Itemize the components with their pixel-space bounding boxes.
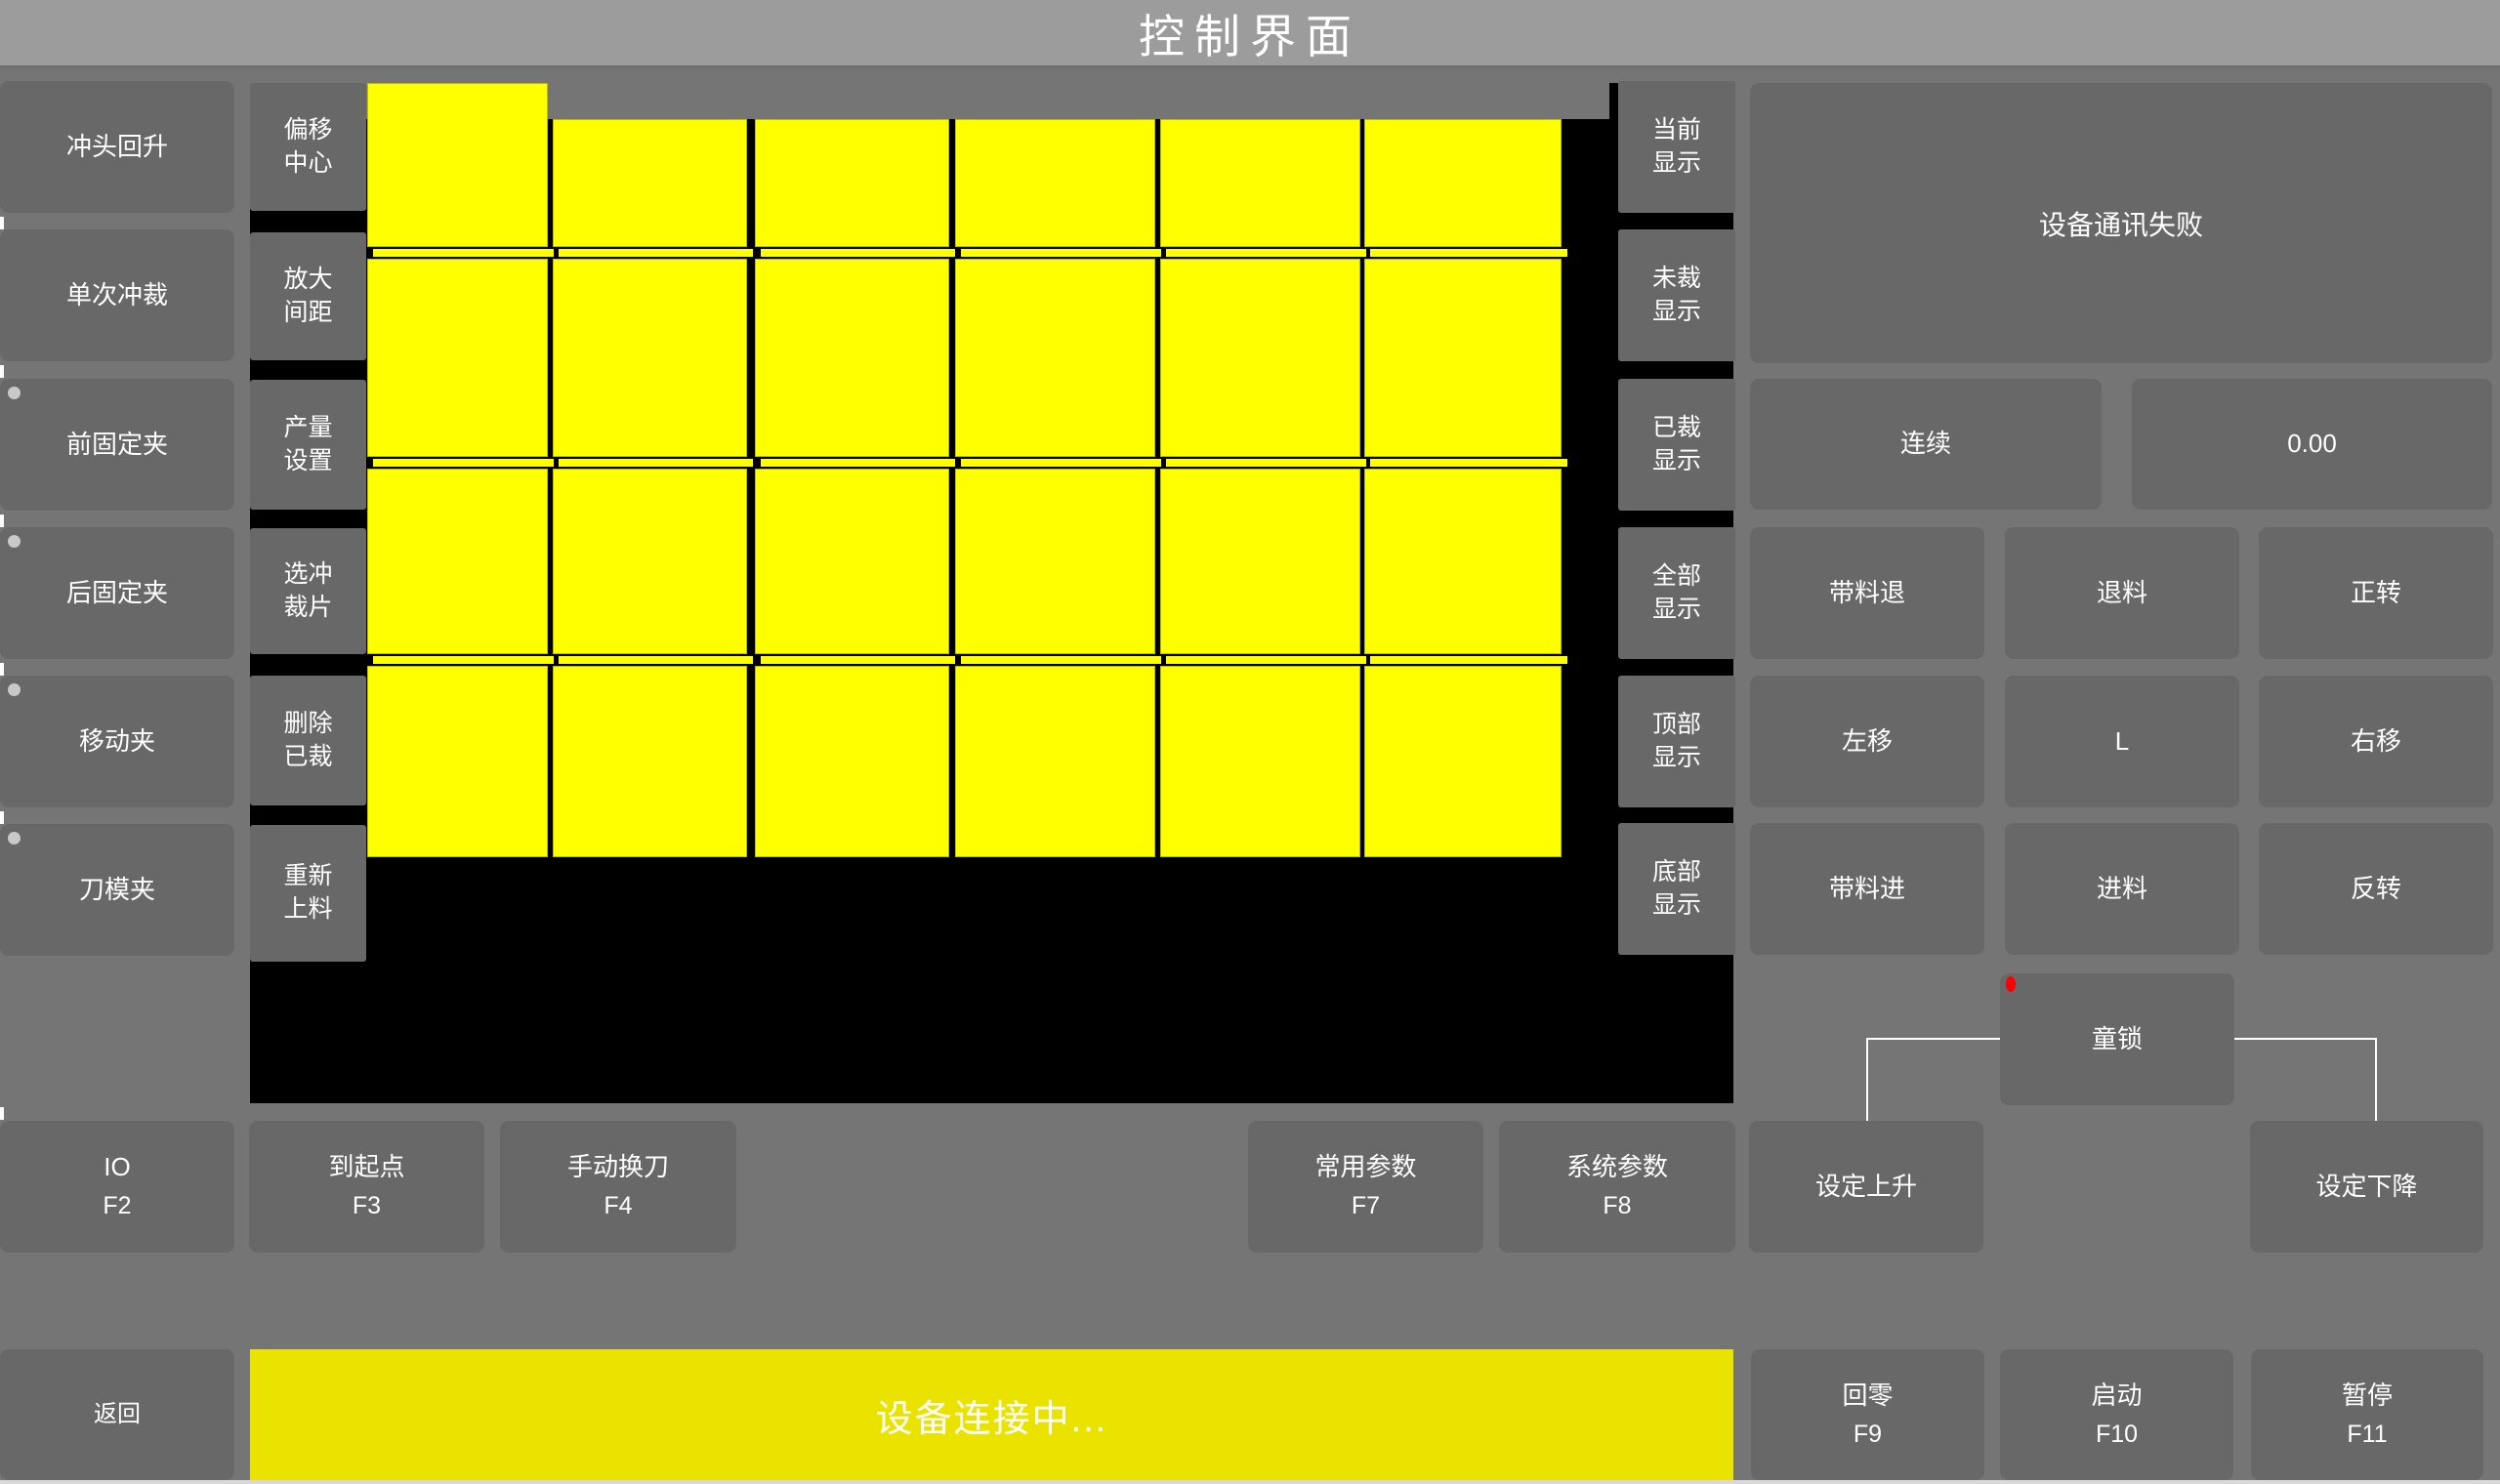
- nest-divider-strip: [559, 249, 753, 257]
- page-title: 控制界面: [1139, 0, 1361, 66]
- button-label: 全部 显示: [1652, 560, 1701, 627]
- button-io-f2[interactable]: IO F2: [0, 1121, 234, 1253]
- button-l[interactable]: L: [2005, 676, 2239, 807]
- button-label: 设定上升: [1815, 1170, 1917, 1204]
- nest-piece[interactable]: [1160, 259, 1360, 457]
- button-unload-material[interactable]: 退料: [2005, 527, 2239, 659]
- nest-piece[interactable]: [955, 469, 1155, 654]
- button-current-display[interactable]: 当前 显示: [1618, 81, 1735, 213]
- button-rear-clamp[interactable]: 后固定夹: [0, 527, 234, 659]
- button-label: 暂停: [2342, 1379, 2393, 1413]
- button-label: 偏移 中心: [283, 114, 332, 181]
- nest-piece[interactable]: [367, 469, 548, 654]
- button-punch-raise[interactable]: 冲头回升: [0, 81, 234, 213]
- edge-tick: [0, 663, 4, 676]
- button-label: 进料: [2097, 872, 2147, 906]
- nest-divider-strip: [373, 656, 554, 664]
- edge-tick: [0, 515, 4, 527]
- indicator-dot: [8, 832, 21, 845]
- alert-message: 设备通讯失败: [2039, 204, 2203, 243]
- button-label: 系统参数: [1566, 1150, 1668, 1184]
- wire-right-h: [2234, 1038, 2377, 1040]
- indicator-dot: [8, 535, 21, 548]
- wire-left-v: [1866, 1038, 1868, 1121]
- fkey-label: F7: [1352, 1190, 1380, 1223]
- button-label: 设定下降: [2315, 1170, 2417, 1204]
- button-die-clamp[interactable]: 刀模夹: [0, 824, 234, 956]
- nest-piece[interactable]: [553, 119, 747, 247]
- button-top-display[interactable]: 顶部 显示: [1618, 676, 1735, 807]
- nest-divider-strip: [761, 249, 955, 257]
- child-lock-active-dot: [2006, 976, 2016, 992]
- control-screen: 控制界面 冲头回升 单次冲裁 前固定夹 后固定夹 移动夹 刀模夹 偏移 中心 放…: [0, 0, 2500, 1484]
- fkey-label: F11: [2347, 1419, 2387, 1452]
- button-move-left[interactable]: 左移: [1750, 676, 1984, 807]
- button-system-params-f8[interactable]: 系统参数 F8: [1499, 1121, 1735, 1253]
- nest-divider-strip: [1370, 249, 1567, 257]
- nest-divider-strip: [1166, 459, 1366, 467]
- nest-piece[interactable]: [1160, 469, 1360, 654]
- button-label: L: [2115, 724, 2129, 759]
- button-label: 顶部 显示: [1652, 709, 1701, 775]
- button-reverse-rotate[interactable]: 反转: [2259, 823, 2493, 955]
- nest-piece[interactable]: [1364, 666, 1562, 857]
- nest-piece[interactable]: [553, 666, 747, 857]
- nest-piece[interactable]: [1160, 666, 1360, 857]
- button-set-rise[interactable]: 设定上升: [1749, 1121, 1983, 1253]
- button-uncut-display[interactable]: 未裁 显示: [1618, 229, 1735, 361]
- button-label: 冲头回升: [66, 130, 168, 164]
- button-label: 连续: [1900, 427, 1951, 461]
- nest-divider-strip: [961, 459, 1161, 467]
- edge-tick: [0, 365, 4, 378]
- nest-piece[interactable]: [955, 119, 1155, 247]
- button-enlarge-gap[interactable]: 放大 间距: [250, 232, 366, 360]
- button-label: 启动: [2091, 1379, 2142, 1413]
- nest-divider-strip: [1370, 656, 1567, 664]
- nest-divider-strip: [761, 656, 955, 664]
- button-yield-settings[interactable]: 产量 设置: [250, 380, 366, 510]
- indicator-dot: [8, 683, 21, 696]
- button-pause-f11[interactable]: 暂停 F11: [2251, 1349, 2483, 1480]
- nest-divider-strip: [1166, 656, 1366, 664]
- button-label: 反转: [2351, 872, 2401, 906]
- button-label: 重新 上料: [283, 860, 332, 927]
- edge-tick: [0, 217, 4, 229]
- button-set-lower[interactable]: 设定下降: [2250, 1121, 2483, 1253]
- nest-piece[interactable]: [367, 259, 548, 457]
- button-label: 未裁 显示: [1652, 263, 1701, 329]
- button-label: 删除 已裁: [283, 708, 332, 774]
- nest-piece[interactable]: [755, 119, 949, 247]
- button-strip-retract[interactable]: 带料退: [1750, 527, 1984, 659]
- nest-piece[interactable]: [1364, 259, 1562, 457]
- button-to-origin-f3[interactable]: 到起点 F3: [249, 1121, 484, 1253]
- button-label: 回零: [1842, 1379, 1893, 1413]
- button-back[interactable]: 返回: [0, 1349, 234, 1480]
- button-label: 带料进: [1829, 872, 1905, 906]
- wire-left-h: [1866, 1038, 2000, 1040]
- button-all-display[interactable]: 全部 显示: [1618, 527, 1735, 659]
- edge-tick: [0, 811, 4, 824]
- button-label: 产量 设置: [283, 412, 332, 478]
- button-reload-material[interactable]: 重新 上料: [250, 825, 366, 962]
- nest-divider-strip: [961, 656, 1161, 664]
- bottom-edge-strip: [0, 1480, 2500, 1484]
- nest-piece[interactable]: [955, 666, 1155, 857]
- value-display-box: 0.00: [2132, 379, 2492, 510]
- nest-piece[interactable]: [553, 469, 747, 654]
- button-label: 刀模夹: [79, 873, 155, 907]
- indicator-dot: [8, 387, 21, 399]
- button-move-right[interactable]: 右移: [2259, 676, 2493, 807]
- button-label: 放大 间距: [283, 264, 332, 330]
- nest-piece[interactable]: [367, 666, 548, 857]
- fkey-label: F8: [1603, 1190, 1631, 1223]
- button-label: IO: [104, 1150, 130, 1184]
- nest-divider-strip: [373, 459, 554, 467]
- fkey-label: F3: [353, 1190, 381, 1223]
- fkey-label: F4: [604, 1190, 632, 1223]
- button-home-f9[interactable]: 回零 F9: [1751, 1349, 1984, 1480]
- button-label: 移动夹: [79, 724, 155, 759]
- button-manual-tool-change-f4[interactable]: 手动换刀 F4: [500, 1121, 736, 1253]
- fkey-label: F9: [1854, 1419, 1882, 1452]
- button-label: 正转: [2351, 576, 2401, 610]
- button-moving-clamp[interactable]: 移动夹: [0, 676, 234, 807]
- button-label: 到起点: [328, 1150, 404, 1184]
- edge-tick: [0, 1107, 4, 1120]
- button-label: 单次冲裁: [66, 278, 168, 312]
- button-select-piece[interactable]: 选冲 裁片: [250, 528, 366, 654]
- button-bottom-display[interactable]: 底部 显示: [1618, 823, 1735, 955]
- button-label: 前固定夹: [66, 428, 168, 462]
- canvas-top-bar: [1609, 83, 1618, 119]
- nest-piece[interactable]: [367, 83, 548, 247]
- nest-piece[interactable]: [755, 666, 949, 857]
- button-common-params-f7[interactable]: 常用参数 F7: [1248, 1121, 1483, 1253]
- nest-divider-strip: [961, 249, 1161, 257]
- fkey-label: F10: [2096, 1419, 2138, 1452]
- nest-piece[interactable]: [755, 259, 949, 457]
- nest-piece[interactable]: [755, 469, 949, 654]
- nest-divider-strip: [373, 249, 554, 257]
- button-label: 后固定夹: [66, 576, 168, 610]
- nest-piece[interactable]: [1160, 119, 1360, 247]
- button-single-punch[interactable]: 单次冲裁: [0, 229, 234, 361]
- button-label: 童锁: [2092, 1022, 2143, 1056]
- button-strip-feed[interactable]: 带料进: [1750, 823, 1984, 955]
- button-feed-material[interactable]: 进料: [2005, 823, 2239, 955]
- button-label: 选冲 裁片: [283, 558, 332, 625]
- nest-divider-strip: [559, 656, 753, 664]
- fkey-label: F2: [103, 1190, 131, 1223]
- nest-piece[interactable]: [1364, 469, 1562, 654]
- button-label: 左移: [1842, 724, 1893, 759]
- button-label: 退料: [2097, 576, 2147, 610]
- button-label: 返回: [94, 1399, 141, 1430]
- wire-right-v: [2375, 1038, 2377, 1121]
- button-front-clamp[interactable]: 前固定夹: [0, 379, 234, 511]
- nest-divider-strip: [1166, 249, 1366, 257]
- title-bar: 控制界面: [0, 0, 2500, 68]
- button-label: 常用参数: [1314, 1150, 1416, 1184]
- alert-panel: 设备通讯失败: [1750, 83, 2492, 363]
- status-text: 设备连接中...: [876, 1388, 1108, 1442]
- value-readout: 0.00: [2287, 427, 2337, 461]
- button-continuous-mode[interactable]: 连续: [1750, 379, 2102, 510]
- button-delete-cut[interactable]: 删除 已裁: [250, 676, 366, 805]
- nest-piece[interactable]: [1364, 119, 1562, 247]
- button-label: 带料退: [1829, 576, 1905, 610]
- nest-piece[interactable]: [553, 259, 747, 457]
- button-offset-center[interactable]: 偏移 中心: [250, 83, 366, 211]
- button-start-f10[interactable]: 启动 F10: [2000, 1349, 2233, 1480]
- nest-divider-strip: [761, 459, 955, 467]
- button-forward-rotate[interactable]: 正转: [2259, 527, 2493, 659]
- button-child-lock[interactable]: 童锁: [2000, 973, 2234, 1105]
- button-label: 当前 显示: [1652, 114, 1701, 181]
- button-label: 手动换刀: [567, 1150, 669, 1184]
- button-label: 右移: [2351, 724, 2401, 759]
- button-label: 已裁 显示: [1652, 412, 1701, 478]
- nest-divider-strip: [559, 459, 753, 467]
- nest-divider-strip: [1370, 459, 1567, 467]
- nest-piece[interactable]: [955, 259, 1155, 457]
- button-cut-display[interactable]: 已裁 显示: [1618, 379, 1735, 511]
- button-label: 底部 显示: [1652, 856, 1701, 923]
- connection-status-bar: 设备连接中...: [250, 1349, 1733, 1481]
